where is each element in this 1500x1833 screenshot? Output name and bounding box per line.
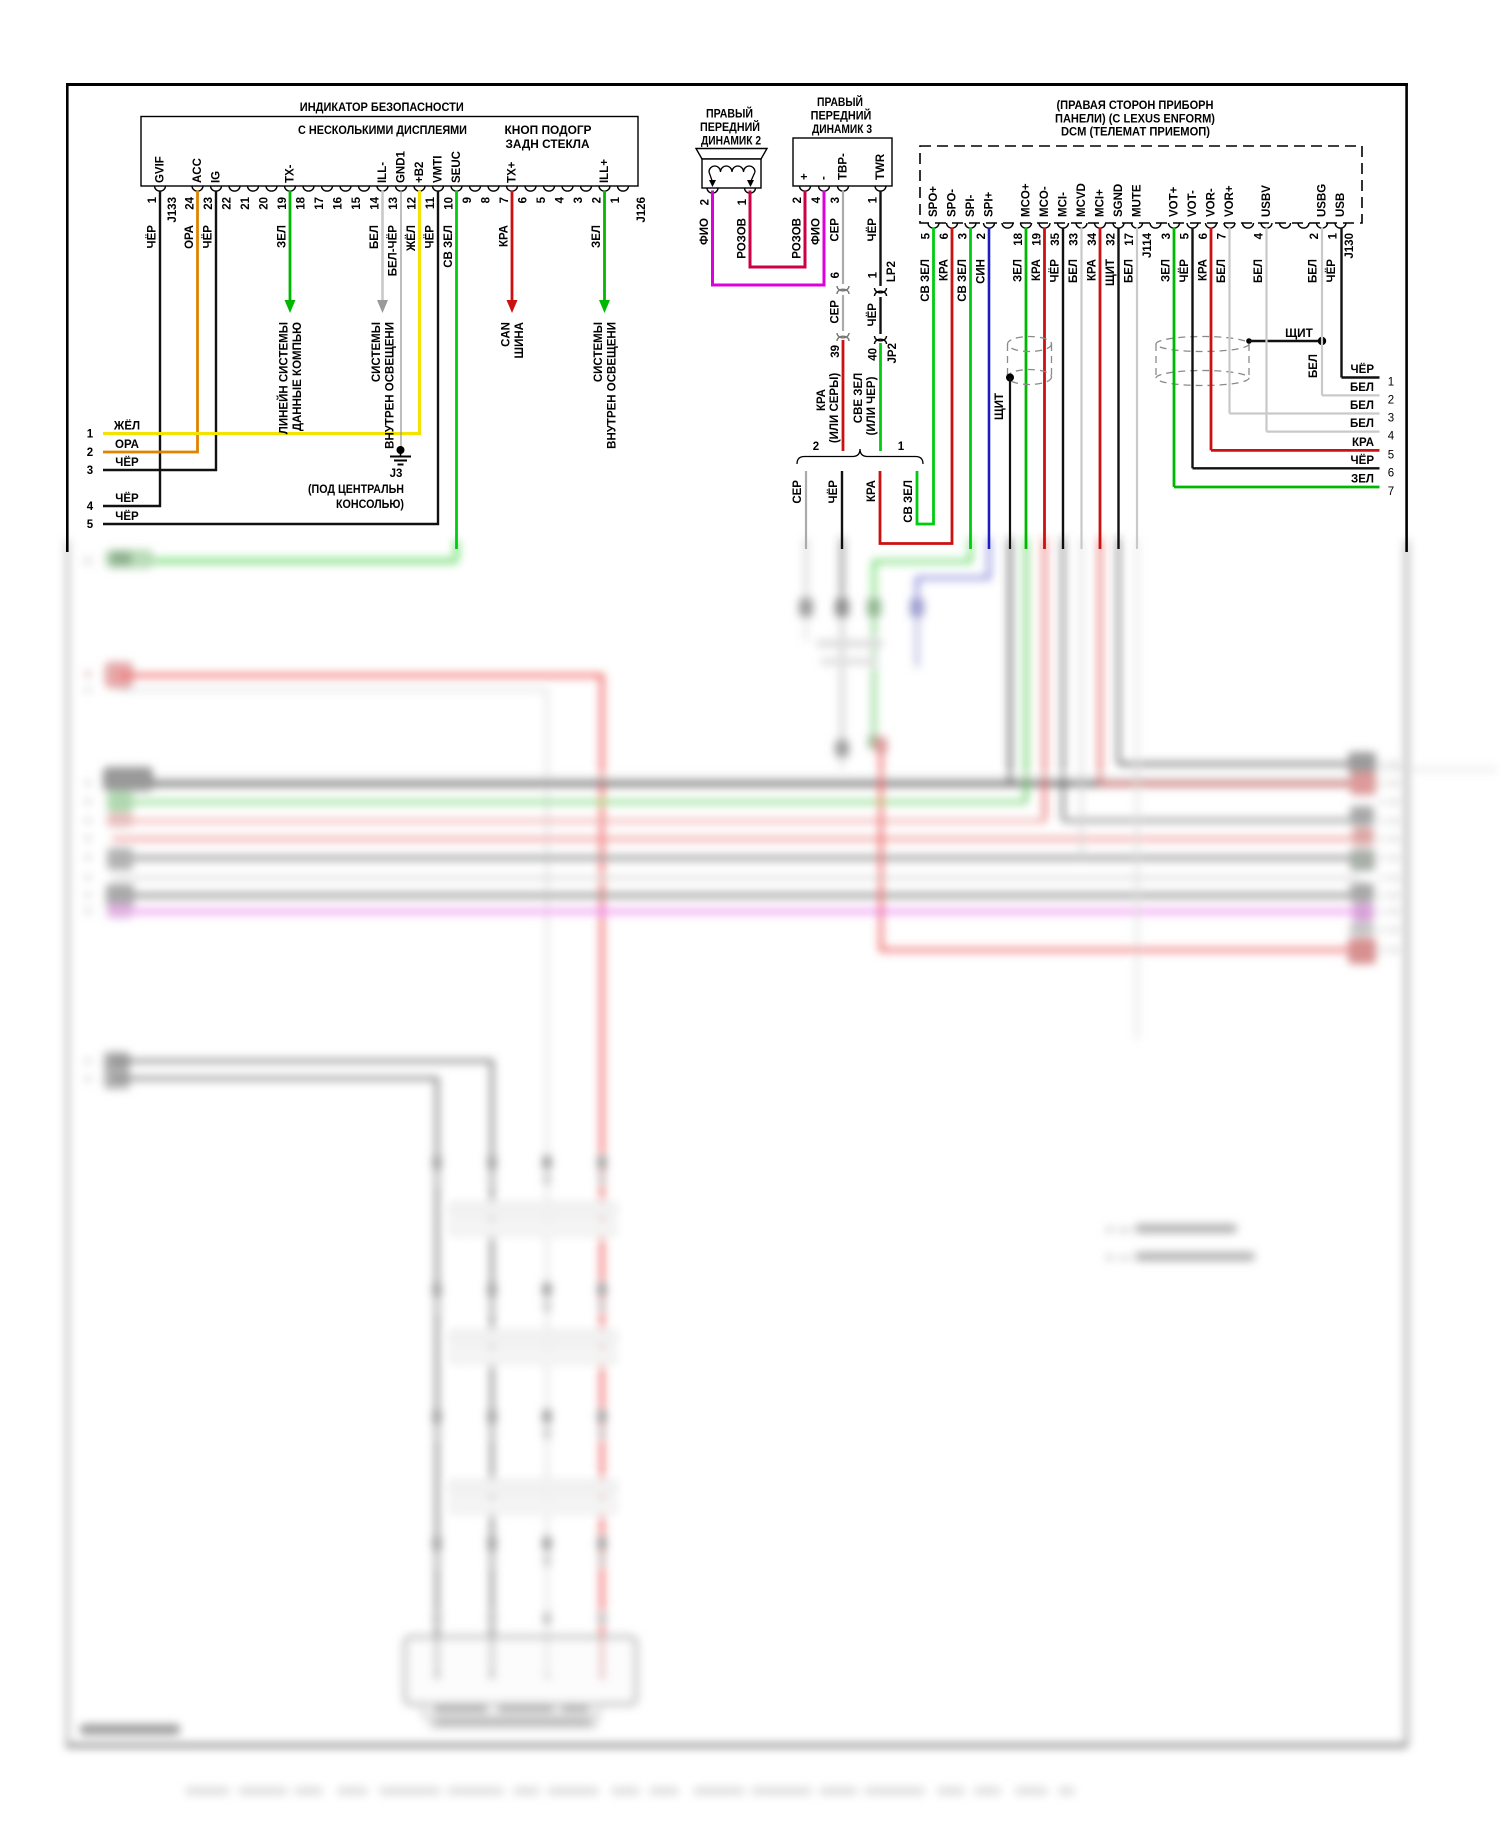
svg-text:3: 3 (958, 233, 970, 239)
svg-text:1: 1 (87, 429, 94, 441)
svg-text:4: 4 (87, 501, 94, 513)
svg-text:7: 7 (1217, 233, 1229, 239)
svg-text:+: + (799, 173, 811, 180)
svg-text:ОРА: ОРА (115, 439, 139, 451)
svg-text:ЗЕЛ: ЗЕЛ (591, 225, 603, 248)
svg-text:1: 1 (898, 441, 905, 453)
svg-text:ЧЁР: ЧЁР (1178, 259, 1191, 283)
svg-text:18: 18 (296, 196, 308, 209)
svg-text:ЩИТ: ЩИТ (1285, 326, 1314, 340)
svg-text:ILL+: ILL+ (599, 159, 611, 183)
svg-text:J126: J126 (636, 197, 648, 223)
svg-text:ЧЁР: ЧЁР (115, 456, 139, 469)
svg-text:3: 3 (87, 465, 93, 477)
svg-text:ТВР-: ТВР- (838, 153, 850, 180)
svg-text:4: 4 (811, 196, 823, 203)
svg-text:13: 13 (388, 197, 400, 210)
svg-text:USB: USB (1335, 193, 1347, 217)
svg-text:24: 24 (185, 196, 197, 209)
svg-text:23: 23 (203, 197, 215, 210)
svg-text:БЕЛ: БЕЛ (1216, 259, 1228, 283)
svg-text:(ИЛИ СЕРЫ): (ИЛИ СЕРЫ) (829, 373, 841, 444)
svg-text:40: 40 (868, 348, 880, 361)
svg-text:ЩИТ: ЩИТ (994, 393, 1006, 420)
svg-text:11: 11 (425, 196, 437, 209)
svg-text:1: 1 (147, 196, 159, 203)
svg-text:КРА: КРА (1352, 437, 1374, 449)
svg-text:4: 4 (555, 196, 567, 203)
svg-text:2: 2 (700, 199, 712, 205)
svg-text:17: 17 (314, 197, 326, 210)
svg-text:39: 39 (830, 345, 842, 358)
svg-text:1: 1 (737, 198, 749, 205)
svg-text:СЕР: СЕР (830, 218, 842, 242)
svg-text:IG: IG (211, 171, 223, 183)
svg-text:КРА: КРА (1198, 259, 1210, 281)
svg-text:LP2: LP2 (886, 261, 898, 282)
svg-text:14: 14 (370, 196, 382, 209)
svg-text:ВНУТРЕН ОСВЕЩЕНИ: ВНУТРЕН ОСВЕЩЕНИ (385, 322, 397, 449)
svg-text:СЕР: СЕР (830, 300, 842, 324)
svg-text:ЧЁР: ЧЁР (146, 225, 159, 249)
svg-text:БЕЛ: БЕЛ (1068, 259, 1080, 283)
svg-text:1: 1 (868, 271, 880, 278)
svg-text:35: 35 (1050, 232, 1062, 245)
svg-text:ЖЁЛ: ЖЁЛ (113, 420, 140, 433)
svg-text:TX-: TX- (285, 164, 297, 183)
svg-text:SEUC: SEUC (451, 151, 463, 183)
svg-text:9: 9 (462, 197, 474, 203)
svg-text:5: 5 (536, 196, 548, 203)
svg-text:DCM (ТЕЛЕМАТ ПРИЕМОП): DCM (ТЕЛЕМАТ ПРИЕМОП) (1061, 126, 1210, 139)
svg-text:ЧЁР: ЧЁР (1351, 454, 1375, 467)
svg-text:СЕР: СЕР (792, 480, 804, 504)
svg-text:6: 6 (1198, 233, 1210, 239)
svg-text:ЧЁР: ЧЁР (866, 218, 879, 242)
svg-text:GVIF: GVIF (155, 156, 167, 183)
svg-text:БЕЛ: БЕЛ (1124, 259, 1136, 283)
svg-text:ЧЁР: ЧЁР (1351, 363, 1375, 376)
svg-text:MCO-: MCO- (1039, 186, 1051, 217)
svg-text:БЕЛ: БЕЛ (1308, 354, 1320, 378)
svg-text:10: 10 (444, 197, 456, 210)
svg-text:18: 18 (1013, 232, 1025, 245)
svg-text:КНОП ПОДОГР: КНОП ПОДОГР (505, 124, 592, 137)
svg-text:ИНДИКАТОР БЕЗОПАСНОСТИ: ИНДИКАТОР БЕЗОПАСНОСТИ (300, 101, 464, 114)
svg-text:3: 3 (573, 197, 585, 203)
svg-text:ЧЁР: ЧЁР (202, 225, 215, 249)
svg-text:J133: J133 (167, 197, 179, 223)
svg-text:2: 2 (792, 197, 804, 203)
svg-text:ВНУТРЕН ОСВЕЩЕНИ: ВНУТРЕН ОСВЕЩЕНИ (607, 322, 619, 449)
svg-text:+B2: +B2 (414, 162, 426, 183)
svg-text:2: 2 (1309, 233, 1321, 239)
svg-text:6: 6 (518, 197, 530, 203)
svg-text:MCVD: MCVD (1076, 183, 1088, 217)
svg-text:USBG: USBG (1317, 184, 1329, 217)
svg-text:ЧЁР: ЧЁР (1325, 259, 1338, 283)
svg-text:7: 7 (1388, 486, 1394, 498)
svg-text:8: 8 (481, 196, 493, 203)
svg-text:12: 12 (407, 197, 419, 210)
svg-text:ПРАВЫЙ: ПРАВЫЙ (706, 108, 753, 121)
svg-text:4: 4 (1254, 232, 1266, 239)
svg-text:(ПОД ЦЕНТРАЛЬН: (ПОД ЦЕНТРАЛЬН (308, 484, 404, 496)
svg-text:MCI-: MCI- (1058, 192, 1070, 217)
svg-text:ЧЁР: ЧЁР (1049, 259, 1062, 283)
svg-text:ФИО: ФИО (811, 218, 823, 245)
svg-text:20: 20 (259, 197, 271, 210)
svg-text:1: 1 (1328, 232, 1340, 239)
svg-text:СИСТЕМЫ: СИСТЕМЫ (371, 322, 383, 382)
svg-text:ЩИТ: ЩИТ (1105, 259, 1117, 286)
svg-text:ЖЁЛ: ЖЁЛ (405, 225, 418, 252)
svg-text:SPO+: SPO+ (928, 186, 940, 217)
svg-text:1: 1 (868, 196, 880, 203)
svg-text:СВ ЗЕЛ: СВ ЗЕЛ (903, 480, 915, 523)
svg-text:СВ ЗЕЛ: СВ ЗЕЛ (920, 259, 932, 302)
svg-text:ОРА: ОРА (184, 225, 196, 249)
svg-text:ПАНЕЛИ) (С LEXUS ENFORM): ПАНЕЛИ) (С LEXUS ENFORM) (1055, 113, 1215, 126)
svg-text:16: 16 (333, 197, 345, 210)
svg-text:32: 32 (1106, 233, 1118, 246)
svg-text:MCI+: MCI+ (1095, 189, 1107, 217)
svg-text:С НЕСКОЛЬКИМИ ДИСПЛЕЯМИ: С НЕСКОЛЬКИМИ ДИСПЛЕЯМИ (298, 124, 467, 137)
svg-text:MUTE: MUTE (1132, 184, 1144, 217)
svg-text:VMTI: VMTI (433, 156, 445, 183)
svg-text:КРА: КРА (816, 389, 828, 411)
svg-text:2: 2 (1388, 394, 1394, 406)
svg-text:ЧЁР: ЧЁР (115, 510, 139, 523)
svg-text:КРА: КРА (499, 225, 511, 247)
svg-text:17: 17 (1124, 233, 1136, 246)
svg-text:19: 19 (1032, 233, 1044, 246)
svg-text:ДАННЫЕ КОМПЬЮ: ДАННЫЕ КОМПЬЮ (292, 322, 304, 431)
svg-text:(ИЛИ ЧЕР): (ИЛИ ЧЕР) (866, 376, 878, 435)
svg-text:5: 5 (921, 232, 933, 239)
svg-text:ACC: ACC (192, 158, 204, 183)
svg-text:ЗЕЛ: ЗЕЛ (1013, 259, 1025, 282)
svg-text:(ПРАВАЯ СТОРОН ПРИБОРН: (ПРАВАЯ СТОРОН ПРИБОРН (1057, 99, 1214, 112)
svg-text:USBV: USBV (1261, 185, 1273, 217)
svg-text:СИСТЕМЫ: СИСТЕМЫ (593, 322, 605, 382)
svg-text:4: 4 (1388, 431, 1395, 443)
svg-text:SGND: SGND (1113, 184, 1125, 217)
svg-text:VOR-: VOR- (1206, 188, 1218, 217)
svg-text:5: 5 (1180, 232, 1192, 239)
svg-text:ЗЕЛ: ЗЕЛ (1161, 259, 1173, 282)
svg-text:3: 3 (1388, 413, 1394, 425)
svg-text:РОЗОВ: РОЗОВ (792, 218, 804, 259)
svg-text:-: - (818, 176, 830, 180)
svg-text:ФИО: ФИО (699, 218, 711, 245)
svg-text:СВ ЗЕЛ: СВ ЗЕЛ (957, 259, 969, 302)
svg-text:ЧЁР: ЧЁР (866, 303, 879, 327)
svg-text:КОНСОЛЬЮ): КОНСОЛЬЮ) (336, 499, 404, 511)
svg-text:21: 21 (240, 196, 252, 209)
svg-text:ILL-: ILL- (377, 162, 389, 183)
svg-text:VOT+: VOT+ (1169, 186, 1181, 217)
svg-text:СВ ЗЕЛ: СВ ЗЕЛ (443, 225, 455, 268)
svg-text:БЕЛ: БЕЛ (369, 225, 381, 249)
svg-text:БЕЛ: БЕЛ (1308, 259, 1320, 283)
svg-text:КРА: КРА (1031, 259, 1043, 281)
svg-text:SPO-: SPO- (947, 189, 959, 217)
svg-text:2: 2 (87, 447, 93, 459)
svg-text:КРА: КРА (939, 259, 951, 281)
svg-text:ПЕРЕДНИЙ: ПЕРЕДНИЙ (700, 121, 760, 134)
svg-text:TX+: TX+ (507, 161, 519, 183)
svg-text:MCO+: MCO+ (1021, 183, 1033, 217)
svg-text:SPI+: SPI+ (984, 191, 996, 217)
svg-text:ЗАДН СТЕКЛА: ЗАДН СТЕКЛА (506, 138, 591, 151)
svg-text:БЕЛ-ЧЁР: БЕЛ-ЧЁР (387, 225, 400, 277)
svg-text:5: 5 (1388, 449, 1394, 461)
svg-text:33: 33 (1069, 233, 1081, 246)
svg-text:ЧЁР: ЧЁР (827, 480, 840, 504)
svg-text:БЕЛ: БЕЛ (1350, 400, 1374, 412)
svg-text:2: 2 (592, 197, 604, 203)
svg-text:КРА: КРА (1087, 259, 1099, 281)
svg-text:CAN: CAN (501, 322, 513, 347)
svg-text:JP2: JP2 (887, 343, 899, 363)
svg-text:15: 15 (351, 196, 363, 209)
svg-text:3: 3 (830, 197, 842, 203)
svg-text:ПЕРЕДНИЙ: ПЕРЕДНИЙ (811, 110, 872, 123)
svg-text:ЗЕЛ: ЗЕЛ (1351, 474, 1374, 486)
svg-text:SPI-: SPI- (965, 194, 977, 217)
svg-text:ЧЁР: ЧЁР (115, 492, 139, 505)
svg-text:ДИНАМИК 3: ДИНАМИК 3 (812, 123, 872, 136)
svg-text:БЕЛ: БЕЛ (1253, 259, 1265, 283)
svg-text:5: 5 (87, 519, 94, 531)
svg-text:6: 6 (830, 272, 842, 278)
svg-text:19: 19 (277, 197, 289, 210)
svg-text:ЧЁР: ЧЁР (424, 225, 437, 249)
svg-text:6: 6 (939, 233, 951, 239)
svg-text:СИН: СИН (976, 259, 988, 284)
svg-text:ЗЕЛ: ЗЕЛ (277, 225, 289, 248)
svg-text:БЕЛ: БЕЛ (1350, 418, 1374, 430)
svg-text:7: 7 (499, 197, 511, 203)
svg-text:3: 3 (1161, 233, 1173, 239)
svg-text:J130: J130 (1344, 233, 1356, 259)
svg-text:ДИНАМИК 2: ДИНАМИК 2 (701, 135, 761, 148)
svg-text:J3: J3 (390, 468, 403, 480)
svg-text:СВЕ ЗЕЛ: СВЕ ЗЕЛ (853, 373, 865, 423)
svg-text:1: 1 (610, 196, 622, 203)
svg-text:VOT-: VOT- (1187, 190, 1199, 217)
svg-text:GND1: GND1 (396, 150, 408, 183)
svg-text:VOR+: VOR+ (1224, 185, 1236, 217)
svg-text:ШИНА: ШИНА (514, 322, 526, 358)
svg-text:22: 22 (222, 197, 234, 210)
svg-text:ЛИНЕЙН СИСТЕМЫ: ЛИНЕЙН СИСТЕМЫ (278, 322, 291, 434)
svg-text:6: 6 (1388, 467, 1394, 479)
svg-text:БЕЛ: БЕЛ (1350, 382, 1374, 394)
svg-text:1: 1 (1388, 377, 1394, 389)
svg-text:34: 34 (1087, 232, 1099, 245)
svg-text:J114: J114 (1142, 232, 1154, 258)
svg-text:TWR: TWR (875, 153, 887, 180)
svg-text:2: 2 (813, 441, 819, 453)
svg-text:ПРАВЫЙ: ПРАВЫЙ (817, 96, 863, 109)
svg-text:2: 2 (976, 233, 988, 239)
svg-text:КРА: КРА (866, 480, 878, 502)
svg-text:РОЗОВ: РОЗОВ (737, 218, 749, 259)
